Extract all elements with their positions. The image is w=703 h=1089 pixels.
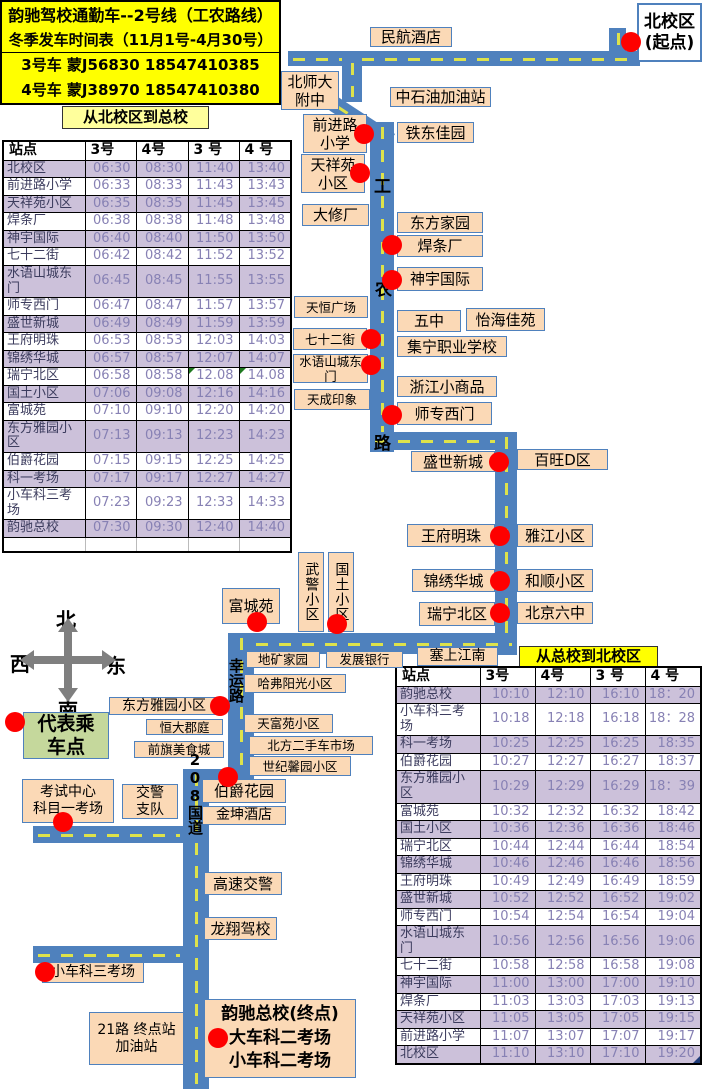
time-cell: 10:36 (480, 821, 535, 839)
station-cell: 科一考场 (396, 736, 480, 754)
station-cell: 王府明珠 (396, 873, 480, 891)
time-cell: 18：20 (645, 686, 701, 704)
road-label-lu: 路 (374, 429, 391, 454)
stop-dot-ruining (490, 603, 510, 623)
time-cell: 13:52 (239, 248, 291, 266)
time-cell: 09:08 (136, 385, 188, 403)
station-cell: 七十二街 (396, 958, 480, 976)
stop-dot-fuchengyuan (247, 612, 267, 632)
landmark-fazhan: 发展银行 (326, 651, 403, 668)
timetable-row: 科一考场07:1709:1712:2714:27 (3, 470, 291, 488)
timetable-row: 瑞宁北区10:4412:4416:4418:54 (396, 838, 701, 856)
time-cell: 10:44 (480, 838, 535, 856)
station-cell: 锦绣华城 (3, 350, 85, 368)
time-cell: 16:54 (590, 908, 645, 926)
time-cell: 18:54 (645, 838, 701, 856)
time-cell: 08:58 (136, 368, 188, 386)
stop-dot-jinxiu (490, 571, 510, 591)
timetable-row: 水语山城东门06:4508:4511:5513:55 (3, 265, 291, 297)
stop-dot-shizhuan (382, 405, 402, 425)
column-header: 4号 (136, 141, 188, 160)
timetable-to-north-campus: 站点3号4号3 号4 号韵驰总校10:1012:1016:1018：20小车科三… (395, 666, 702, 1065)
time-cell: 13:07 (535, 1028, 590, 1046)
time-cell: 11:59 (188, 315, 239, 333)
stop-dot-qishier (361, 329, 381, 349)
time-cell: 12:18 (535, 704, 590, 736)
time-cell: 18:42 (645, 803, 701, 821)
timetable-row: 北校区06:3008:3011:4013:40 (3, 160, 291, 178)
time-cell: 13:00 (535, 975, 590, 993)
landmark-tianheng: 天恒广场 (294, 296, 368, 318)
timetable-row: 七十二街10:5812:5816:5819:08 (396, 958, 701, 976)
time-cell: 06:40 (85, 230, 136, 248)
station-cell: 王府明珠 (3, 333, 85, 351)
time-cell: 06:53 (85, 333, 136, 351)
station-cell: 北校区 (3, 160, 85, 178)
time-cell: 12:46 (535, 856, 590, 874)
timetable-row: 伯爵花园10:2712:2716:2718:37 (396, 753, 701, 771)
station-cell: 伯爵花园 (396, 753, 480, 771)
time-cell: 09:10 (136, 403, 188, 421)
time-cell: 16:29 (590, 771, 645, 803)
time-cell: 11:43 (188, 178, 239, 196)
station-cell: 国土小区 (3, 385, 85, 403)
station-shizhuan: 师专西门 (397, 402, 492, 425)
time-cell: 12:16 (188, 385, 239, 403)
time-cell: 18:46 (645, 821, 701, 839)
time-cell: 12:10 (535, 686, 590, 704)
time-cell: 17:10 (590, 1046, 645, 1064)
time-cell: 17:03 (590, 993, 645, 1011)
station-cell: 天祥苑小区 (3, 195, 85, 213)
time-cell: 16:10 (590, 686, 645, 704)
time-cell: 12:58 (535, 958, 590, 976)
time-cell: 14:03 (239, 333, 291, 351)
timetable-row: 锦绣华城10:4612:4616:4618:56 (396, 856, 701, 874)
station-bojue: 伯爵花园 (202, 779, 286, 803)
time-cell: 06:33 (85, 178, 136, 196)
landmark-dikuang: 地矿家园 (246, 651, 320, 668)
time-cell: 19:04 (645, 908, 701, 926)
time-cell: 08:49 (136, 315, 188, 333)
timetable-row: 焊条厂06:3808:3811:4813:48 (3, 213, 291, 231)
time-cell: 13:05 (535, 1011, 590, 1029)
compass-horizontal-bar (34, 656, 102, 664)
landmark-jinkun: 金坤酒店 (202, 806, 286, 825)
left-table-title: 从北校区到总校 (62, 106, 209, 129)
time-cell: 12:33 (188, 488, 239, 520)
station-shuiyu: 水语山城东 门 (293, 354, 368, 383)
legend-dot (5, 712, 25, 732)
landmark-wuzhong: 五中 (397, 310, 461, 332)
landmark-zhejiang: 浙江小商品 (397, 376, 497, 397)
timetable-row: 焊条厂11:0313:0317:0319:13 (396, 993, 701, 1011)
time-cell: 19:15 (645, 1011, 701, 1029)
timetable-row: 盛世新城06:4908:4911:5913:59 (3, 315, 291, 333)
stop-dot-hantiaochang (382, 235, 402, 255)
time-cell: 08:42 (136, 248, 188, 266)
time-cell: 13:50 (239, 230, 291, 248)
timetable-row: 韵驰总校07:3009:3012:4014:40 (3, 520, 291, 538)
time-cell: 16:56 (590, 926, 645, 958)
time-cell: 12:03 (188, 333, 239, 351)
stop-dot-kaoshi (53, 812, 73, 832)
landmark-hengda: 恒大郡庭 (146, 719, 223, 735)
time-cell: 14:25 (239, 452, 291, 470)
time-cell: 08:47 (136, 298, 188, 316)
timetable-row: 东方雅园小区07:1309:1312:2314:23 (3, 420, 291, 452)
station-cell: 伯爵花园 (3, 452, 85, 470)
stop-dot-dongfangyayuan (210, 696, 230, 716)
time-cell: 06:49 (85, 315, 136, 333)
schedule-header: 韵驰驾校通勤车--2号线（工农路线） 冬季发车时间表（11月1号-4月30号） … (0, 0, 281, 105)
stop-dot-tianxiangyuan (350, 163, 370, 183)
timetable-row: 盛世新城10:5212:5216:5219:02 (396, 891, 701, 909)
station-cell: 小车科三考场 (3, 488, 85, 520)
time-cell: 13:40 (239, 160, 291, 178)
time-cell: 08:38 (136, 213, 188, 231)
time-cell: 18：28 (645, 704, 701, 736)
station-cell: 师专西门 (396, 908, 480, 926)
time-cell: 11:10 (480, 1046, 535, 1064)
time-cell: 16:46 (590, 856, 645, 874)
time-cell: 19:02 (645, 891, 701, 909)
road-kesan-stub (33, 946, 185, 963)
road-label-gong: 工 (374, 172, 391, 197)
column-header: 4号 (535, 667, 590, 686)
time-cell: 11:03 (480, 993, 535, 1011)
time-cell: 08:57 (136, 350, 188, 368)
timetable-row: 国土小区07:0609:0812:1614:16 (3, 385, 291, 403)
timetable-row: 王府明珠06:5308:5312:0314:03 (3, 333, 291, 351)
time-cell: 12:49 (535, 873, 590, 891)
compass-arrow-up-icon (58, 618, 78, 632)
station-cell: 盛世新城 (3, 315, 85, 333)
landmark-heshun: 和顺小区 (517, 569, 593, 592)
station-cell: 水语山城东门 (396, 926, 480, 958)
timetable-row: 小车科三考场07:2309:2312:3314:33 (3, 488, 291, 520)
compass-arrow-down-icon (58, 688, 78, 702)
station-cell: 国土小区 (396, 821, 480, 839)
time-cell: 11:45 (188, 195, 239, 213)
timetable-row: 天祥苑小区11:0513:0517:0519:15 (396, 1011, 701, 1029)
landmark-tiedong: 铁东佳园 (397, 122, 474, 143)
right-table-title: 从总校到北校区 (519, 646, 658, 667)
legend-boarding-point: 代表乘 车点 (23, 712, 109, 759)
column-header: 站点 (396, 667, 480, 686)
stop-dot-bojue (218, 767, 238, 787)
stop-dot-shengshi (489, 452, 509, 472)
station-cell: 锦绣华城 (396, 856, 480, 874)
time-cell: 13:57 (239, 298, 291, 316)
time-cell: 06:30 (85, 160, 136, 178)
timetable-row: 国土小区10:3612:3616:3618:46 (396, 821, 701, 839)
station-cell: 神宇国际 (3, 230, 85, 248)
time-cell: 10:56 (480, 926, 535, 958)
time-cell: 12:56 (535, 926, 590, 958)
time-cell: 13:43 (239, 178, 291, 196)
empty-row (3, 537, 291, 552)
station-qishier: 七十二街 (293, 328, 367, 350)
timetable-row: 科一考场10:2512:2516:2518:35 (396, 736, 701, 754)
time-cell: 09:15 (136, 452, 188, 470)
time-cell: 12:54 (535, 908, 590, 926)
time-cell: 14:23 (239, 420, 291, 452)
time-cell: 12:52 (535, 891, 590, 909)
time-cell: 11:00 (480, 975, 535, 993)
timetable-row: 前进路小学11:0713:0717:0719:17 (396, 1028, 701, 1046)
time-cell: 07:30 (85, 520, 136, 538)
empty-cell (239, 537, 291, 552)
time-cell: 07:17 (85, 470, 136, 488)
time-cell: 08:30 (136, 160, 188, 178)
station-cell: 水语山城东门 (3, 265, 85, 297)
time-cell: 12:25 (535, 736, 590, 754)
time-cell: 19:10 (645, 975, 701, 993)
time-cell: 16:18 (590, 704, 645, 736)
time-cell: 13:03 (535, 993, 590, 1011)
time-cell: 10:54 (480, 908, 535, 926)
time-cell: 14:16 (239, 385, 291, 403)
time-cell: 19:17 (645, 1028, 701, 1046)
station-cell: 韵驰总校 (396, 686, 480, 704)
time-cell: 06:57 (85, 350, 136, 368)
bus-route-map-page: 韵驰驾校通勤车--2号线（工农路线） 冬季发车时间表（11月1号-4月30号） … (0, 0, 703, 1089)
time-cell: 12:29 (535, 771, 590, 803)
time-cell: 10:27 (480, 753, 535, 771)
station-cell: 七十二街 (3, 248, 85, 266)
time-cell: 19:06 (645, 926, 701, 958)
station-cell: 北校区 (396, 1046, 480, 1064)
time-cell: 11:48 (188, 213, 239, 231)
time-cell: 18:56 (645, 856, 701, 874)
time-cell: 07:10 (85, 403, 136, 421)
landmark-yajiang: 雅江小区 (517, 524, 593, 547)
landmark-gaosu: 高速交警 (204, 872, 282, 895)
time-cell: 13:10 (535, 1046, 590, 1064)
column-header: 3 号 (590, 667, 645, 686)
landmark-saishang: 塞上江南 (417, 647, 498, 666)
time-cell: 06:45 (85, 265, 136, 297)
time-cell: 14:27 (239, 470, 291, 488)
timetable-row: 七十二街06:4208:4211:5213:52 (3, 248, 291, 266)
bus3-info: 3号车 蒙J56830 18547410385 (2, 53, 279, 78)
time-cell: 17:07 (590, 1028, 645, 1046)
time-cell: 19:08 (645, 958, 701, 976)
time-cell: 08:40 (136, 230, 188, 248)
empty-cell (136, 537, 188, 552)
station-cell: 小车科三考场 (396, 704, 480, 736)
time-cell: 12:36 (535, 821, 590, 839)
station-shengshi: 盛世新城 (411, 451, 495, 472)
time-cell: 11:40 (188, 160, 239, 178)
time-cell: 13:45 (239, 195, 291, 213)
station-cell: 神宇国际 (396, 975, 480, 993)
timetable-row: 锦绣华城06:5708:5712:0714:07 (3, 350, 291, 368)
station-jinxiu: 锦绣华城 (412, 569, 495, 592)
timetable-row: 前进路小学06:3308:3311:4313:43 (3, 178, 291, 196)
time-cell: 06:35 (85, 195, 136, 213)
time-cell: 10:18 (480, 704, 535, 736)
station-hantiaochang: 焊条厂 (397, 235, 483, 257)
time-cell: 08:33 (136, 178, 188, 196)
station-cell: 东方雅园小区 (3, 420, 85, 452)
station-origin-beixiaoqu: 北校区 (起点) (637, 3, 702, 62)
time-cell: 12:32 (535, 803, 590, 821)
station-shenyu: 神宇国际 (397, 267, 483, 291)
time-cell: 16:44 (590, 838, 645, 856)
column-header: 3号 (480, 667, 535, 686)
time-cell: 18:37 (645, 753, 701, 771)
time-cell: 10:10 (480, 686, 535, 704)
landmark-daxiuchang: 大修厂 (302, 204, 369, 226)
column-header: 3号 (85, 141, 136, 160)
landmark-tiancheng: 天成印象 (294, 389, 370, 410)
empty-cell (3, 537, 85, 552)
timetable-row: 北校区11:1013:1017:1019:20 (396, 1046, 701, 1064)
time-cell: 12:27 (188, 470, 239, 488)
time-cell: 14:07 (239, 350, 291, 368)
column-header: 站点 (3, 141, 85, 160)
stop-dot-terminus (208, 1028, 228, 1048)
time-cell: 14:33 (239, 488, 291, 520)
time-cell: 16:58 (590, 958, 645, 976)
timetable-row: 小车科三考场10:1812:1816:1818：28 (396, 704, 701, 736)
time-cell: 16:25 (590, 736, 645, 754)
time-cell: 07:23 (85, 488, 136, 520)
compass-arrow-left-icon (20, 650, 34, 670)
time-cell: 14:40 (239, 520, 291, 538)
time-cell: 12:07 (188, 350, 239, 368)
station-cell: 天祥苑小区 (396, 1011, 480, 1029)
timetable-row: 瑞宁北区06:5808:5812.0814.08 (3, 368, 291, 386)
stop-dot-shuiyu (361, 355, 381, 375)
landmark-zhongshiyou: 中石油加油站 (390, 87, 491, 107)
time-cell: 09:23 (136, 488, 188, 520)
column-header: 4 号 (239, 141, 291, 160)
station-ruining: 瑞宁北区 (419, 602, 495, 626)
station-xiaochekesan: 小车科三考场 (42, 962, 144, 983)
timetable-row: 富城苑10:3212:3216:3218:42 (396, 803, 701, 821)
station-cell: 盛世新城 (396, 891, 480, 909)
time-cell: 16:49 (590, 873, 645, 891)
time-cell: 06:47 (85, 298, 136, 316)
timetable-row: 师专西门06:4708:4711:5713:57 (3, 298, 291, 316)
timetable-row: 伯爵花园07:1509:1512:2514:25 (3, 452, 291, 470)
station-cell: 科一考场 (3, 470, 85, 488)
time-cell: 08:45 (136, 265, 188, 297)
time-cell: 11:05 (480, 1011, 535, 1029)
time-cell: 11:55 (188, 265, 239, 297)
landmark-baiwang: 百旺D区 (517, 449, 608, 470)
time-cell: 18:35 (645, 736, 701, 754)
time-cell: 09:30 (136, 520, 188, 538)
station-cell: 富城苑 (396, 803, 480, 821)
compass-arrow-right-icon (102, 650, 116, 670)
landmark-shiji: 世纪馨园小区 (249, 756, 351, 776)
time-cell: 10:49 (480, 873, 535, 891)
stop-dot-guotu (327, 614, 347, 634)
timetable-row: 水语山城东门10:5612:5616:5619:06 (396, 926, 701, 958)
time-cell: 11:52 (188, 248, 239, 266)
landmark-hafu: 哈弗阳光小区 (244, 674, 346, 693)
station-cell: 前进路小学 (3, 178, 85, 196)
time-cell: 16:32 (590, 803, 645, 821)
time-cell: 13:48 (239, 213, 291, 231)
time-cell: 12:27 (535, 753, 590, 771)
station-dongfangyayuan: 东方雅园小区 (109, 697, 219, 715)
time-cell: 18：39 (645, 771, 701, 803)
station-cell: 前进路小学 (396, 1028, 480, 1046)
time-cell: 11:50 (188, 230, 239, 248)
station-cell: 焊条厂 (396, 993, 480, 1011)
time-cell: 12:25 (188, 452, 239, 470)
landmark-beifang: 北方二手车市场 (249, 736, 373, 755)
bus4-info: 4号车 蒙J38970 18547410380 (2, 78, 279, 103)
station-cell: 焊条厂 (3, 213, 85, 231)
time-cell: 09:17 (136, 470, 188, 488)
time-cell: 16:52 (590, 891, 645, 909)
time-cell: 14:20 (239, 403, 291, 421)
time-cell: 09:13 (136, 420, 188, 452)
stop-dot-xiaochekesan (35, 962, 55, 982)
time-cell: 13:59 (239, 315, 291, 333)
timetable-row: 富城苑07:1009:1012:2014:20 (3, 403, 291, 421)
time-cell: 10:25 (480, 736, 535, 754)
timetable-row: 韵驰总校10:1012:1016:1018：20 (396, 686, 701, 704)
time-cell: 07:06 (85, 385, 136, 403)
time-cell: 07:13 (85, 420, 136, 452)
time-cell: 12:23 (188, 420, 239, 452)
time-cell: 19:13 (645, 993, 701, 1011)
station-wangfu: 王府明珠 (407, 524, 495, 547)
time-cell: 18:59 (645, 873, 701, 891)
time-cell: 12:20 (188, 403, 239, 421)
time-cell: 10:29 (480, 771, 535, 803)
landmark-qianqi: 前旗美食城 (134, 741, 224, 758)
empty-cell (188, 537, 239, 552)
landmark-minhang-hotel: 民航酒店 (370, 27, 452, 47)
landmark-wujing: 武警小区 (298, 552, 324, 632)
time-cell: 14.08 (239, 368, 291, 386)
time-cell: 17:05 (590, 1011, 645, 1029)
landmark-jiningzhiye: 集宁职业学校 (397, 336, 507, 357)
timetable-row: 神宇国际11:0013:0017:0019:10 (396, 975, 701, 993)
stop-dot-wangfu (490, 526, 510, 546)
station-cell: 东方雅园小区 (396, 771, 480, 803)
column-header: 4 号 (645, 667, 701, 686)
timetable-row: 师专西门10:5412:5416:5419:04 (396, 908, 701, 926)
empty-cell (85, 537, 136, 552)
time-cell: 06:58 (85, 368, 136, 386)
time-cell: 11:07 (480, 1028, 535, 1046)
time-cell: 10:58 (480, 958, 535, 976)
station-cell: 瑞宁北区 (396, 838, 480, 856)
time-cell: 11:57 (188, 298, 239, 316)
road-label-208-guodao: 208国道 (185, 751, 206, 851)
season-subtitle: 冬季发车时间表（11月1号-4月30号） (2, 28, 279, 52)
timetable-row: 王府明珠10:4912:4916:4918:59 (396, 873, 701, 891)
timetable-to-main-campus: 站点3号4号3 号4 号北校区06:3008:3011:4013:40前进路小学… (2, 140, 292, 553)
landmark-tianfu: 天富苑小区 (244, 714, 333, 733)
landmark-beijingliuzhong: 北京六中 (517, 602, 593, 624)
column-header: 3 号 (188, 141, 239, 160)
landmark-longxiang: 龙翔驾校 (204, 917, 277, 940)
landmark-dongfangjiayuan: 东方家园 (397, 212, 483, 233)
time-cell: 16:27 (590, 753, 645, 771)
stop-dot-shenyu (382, 270, 402, 290)
time-cell: 08:35 (136, 195, 188, 213)
